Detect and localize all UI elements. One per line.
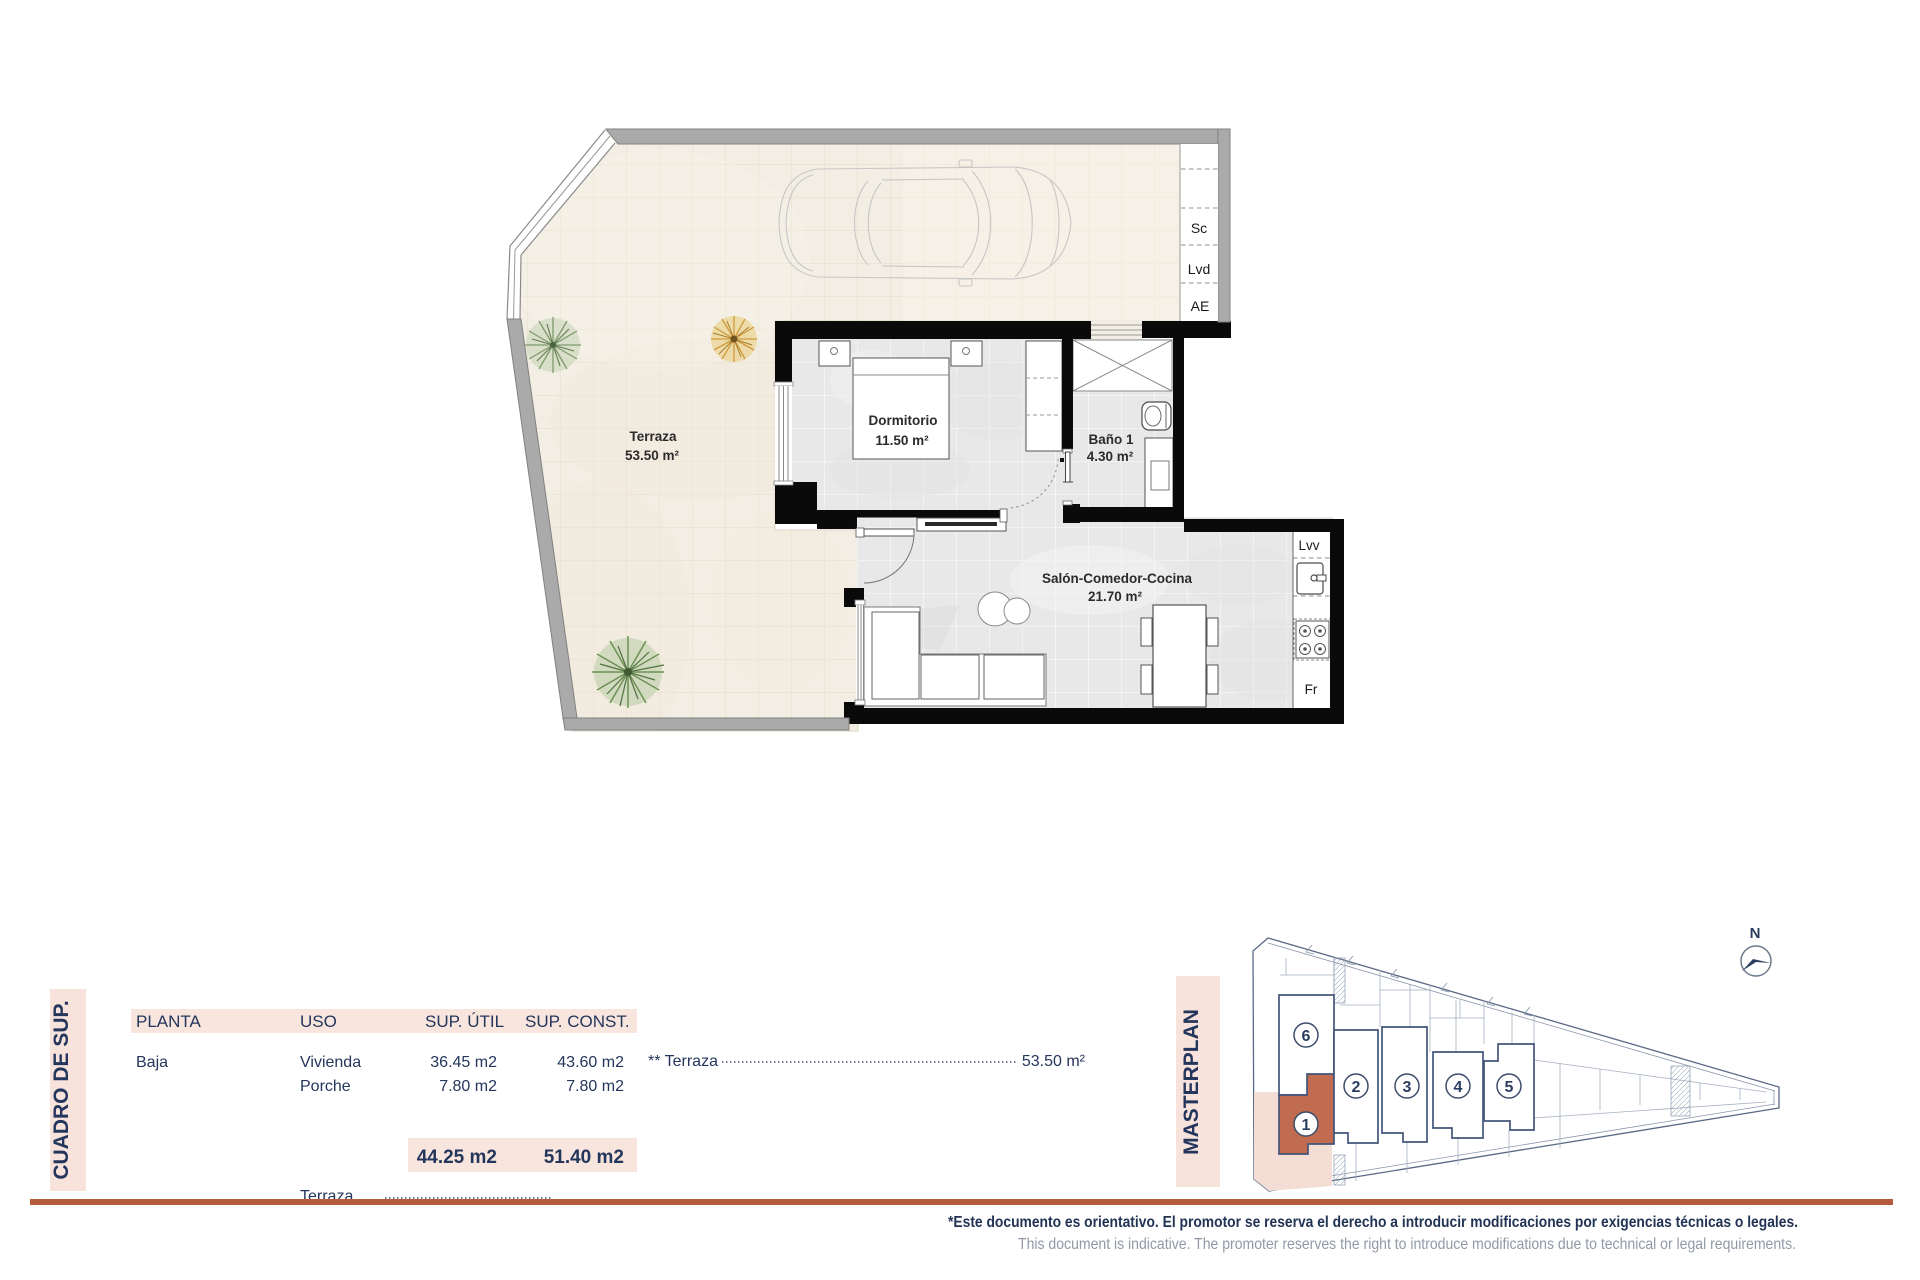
svg-text:Sc: Sc <box>1191 220 1207 236</box>
svg-text:This document is indicative. T: This document is indicative. The promote… <box>1018 1236 1796 1253</box>
svg-text:44.25 m2: 44.25 m2 <box>417 1147 497 1168</box>
svg-text:Vivienda: Vivienda <box>300 1054 361 1071</box>
svg-text:N: N <box>1750 925 1761 942</box>
svg-text:43.60 m2: 43.60 m2 <box>557 1054 624 1071</box>
svg-text:SUP. ÚTIL: SUP. ÚTIL <box>425 1012 504 1031</box>
svg-text:2: 2 <box>1352 1079 1361 1096</box>
svg-text:51.40 m2: 51.40 m2 <box>544 1147 624 1168</box>
svg-text:*Este documento es orientativo: *Este documento es orientativo. El promo… <box>948 1214 1798 1231</box>
svg-text:21.70 m²: 21.70 m² <box>1088 589 1143 604</box>
svg-text:7.80 m2: 7.80 m2 <box>566 1078 624 1095</box>
svg-text:36.45 m2: 36.45 m2 <box>430 1054 497 1071</box>
svg-text:Baño 1: Baño 1 <box>1088 432 1134 447</box>
svg-text:SUP. CONST.: SUP. CONST. <box>525 1012 630 1031</box>
svg-text:3: 3 <box>1403 1079 1412 1096</box>
svg-text:7.80 m2: 7.80 m2 <box>439 1078 497 1095</box>
svg-text:AE: AE <box>1191 298 1210 314</box>
svg-text:Salón-Comedor-Cocina: Salón-Comedor-Cocina <box>1042 571 1193 586</box>
svg-text:Lvd: Lvd <box>1188 261 1211 277</box>
svg-text:CUADRO DE SUP.: CUADRO DE SUP. <box>50 1000 73 1179</box>
svg-text:Baja: Baja <box>136 1054 168 1071</box>
svg-text:Terraza: Terraza <box>629 429 677 444</box>
svg-text:MASTERPLAN: MASTERPLAN <box>1180 1009 1203 1155</box>
svg-text:53.50 m²: 53.50 m² <box>1022 1053 1086 1070</box>
svg-text:Dormitorio: Dormitorio <box>869 413 938 428</box>
svg-text:Fr: Fr <box>1305 682 1318 697</box>
svg-text:4.30 m²: 4.30 m² <box>1087 449 1134 464</box>
svg-text:** Terraza: ** Terraza <box>648 1053 718 1070</box>
svg-text:11.50 m²: 11.50 m² <box>875 433 929 448</box>
svg-text:6: 6 <box>1302 1028 1311 1045</box>
svg-text:PLANTA: PLANTA <box>136 1012 202 1031</box>
svg-text:USO: USO <box>300 1012 337 1031</box>
svg-text:4: 4 <box>1454 1079 1463 1096</box>
svg-text:1: 1 <box>1302 1117 1311 1134</box>
svg-text:53.50 m²: 53.50 m² <box>625 448 680 463</box>
svg-text:5: 5 <box>1505 1079 1514 1096</box>
svg-text:Porche: Porche <box>300 1078 351 1095</box>
svg-text:Lvv: Lvv <box>1298 538 1319 553</box>
